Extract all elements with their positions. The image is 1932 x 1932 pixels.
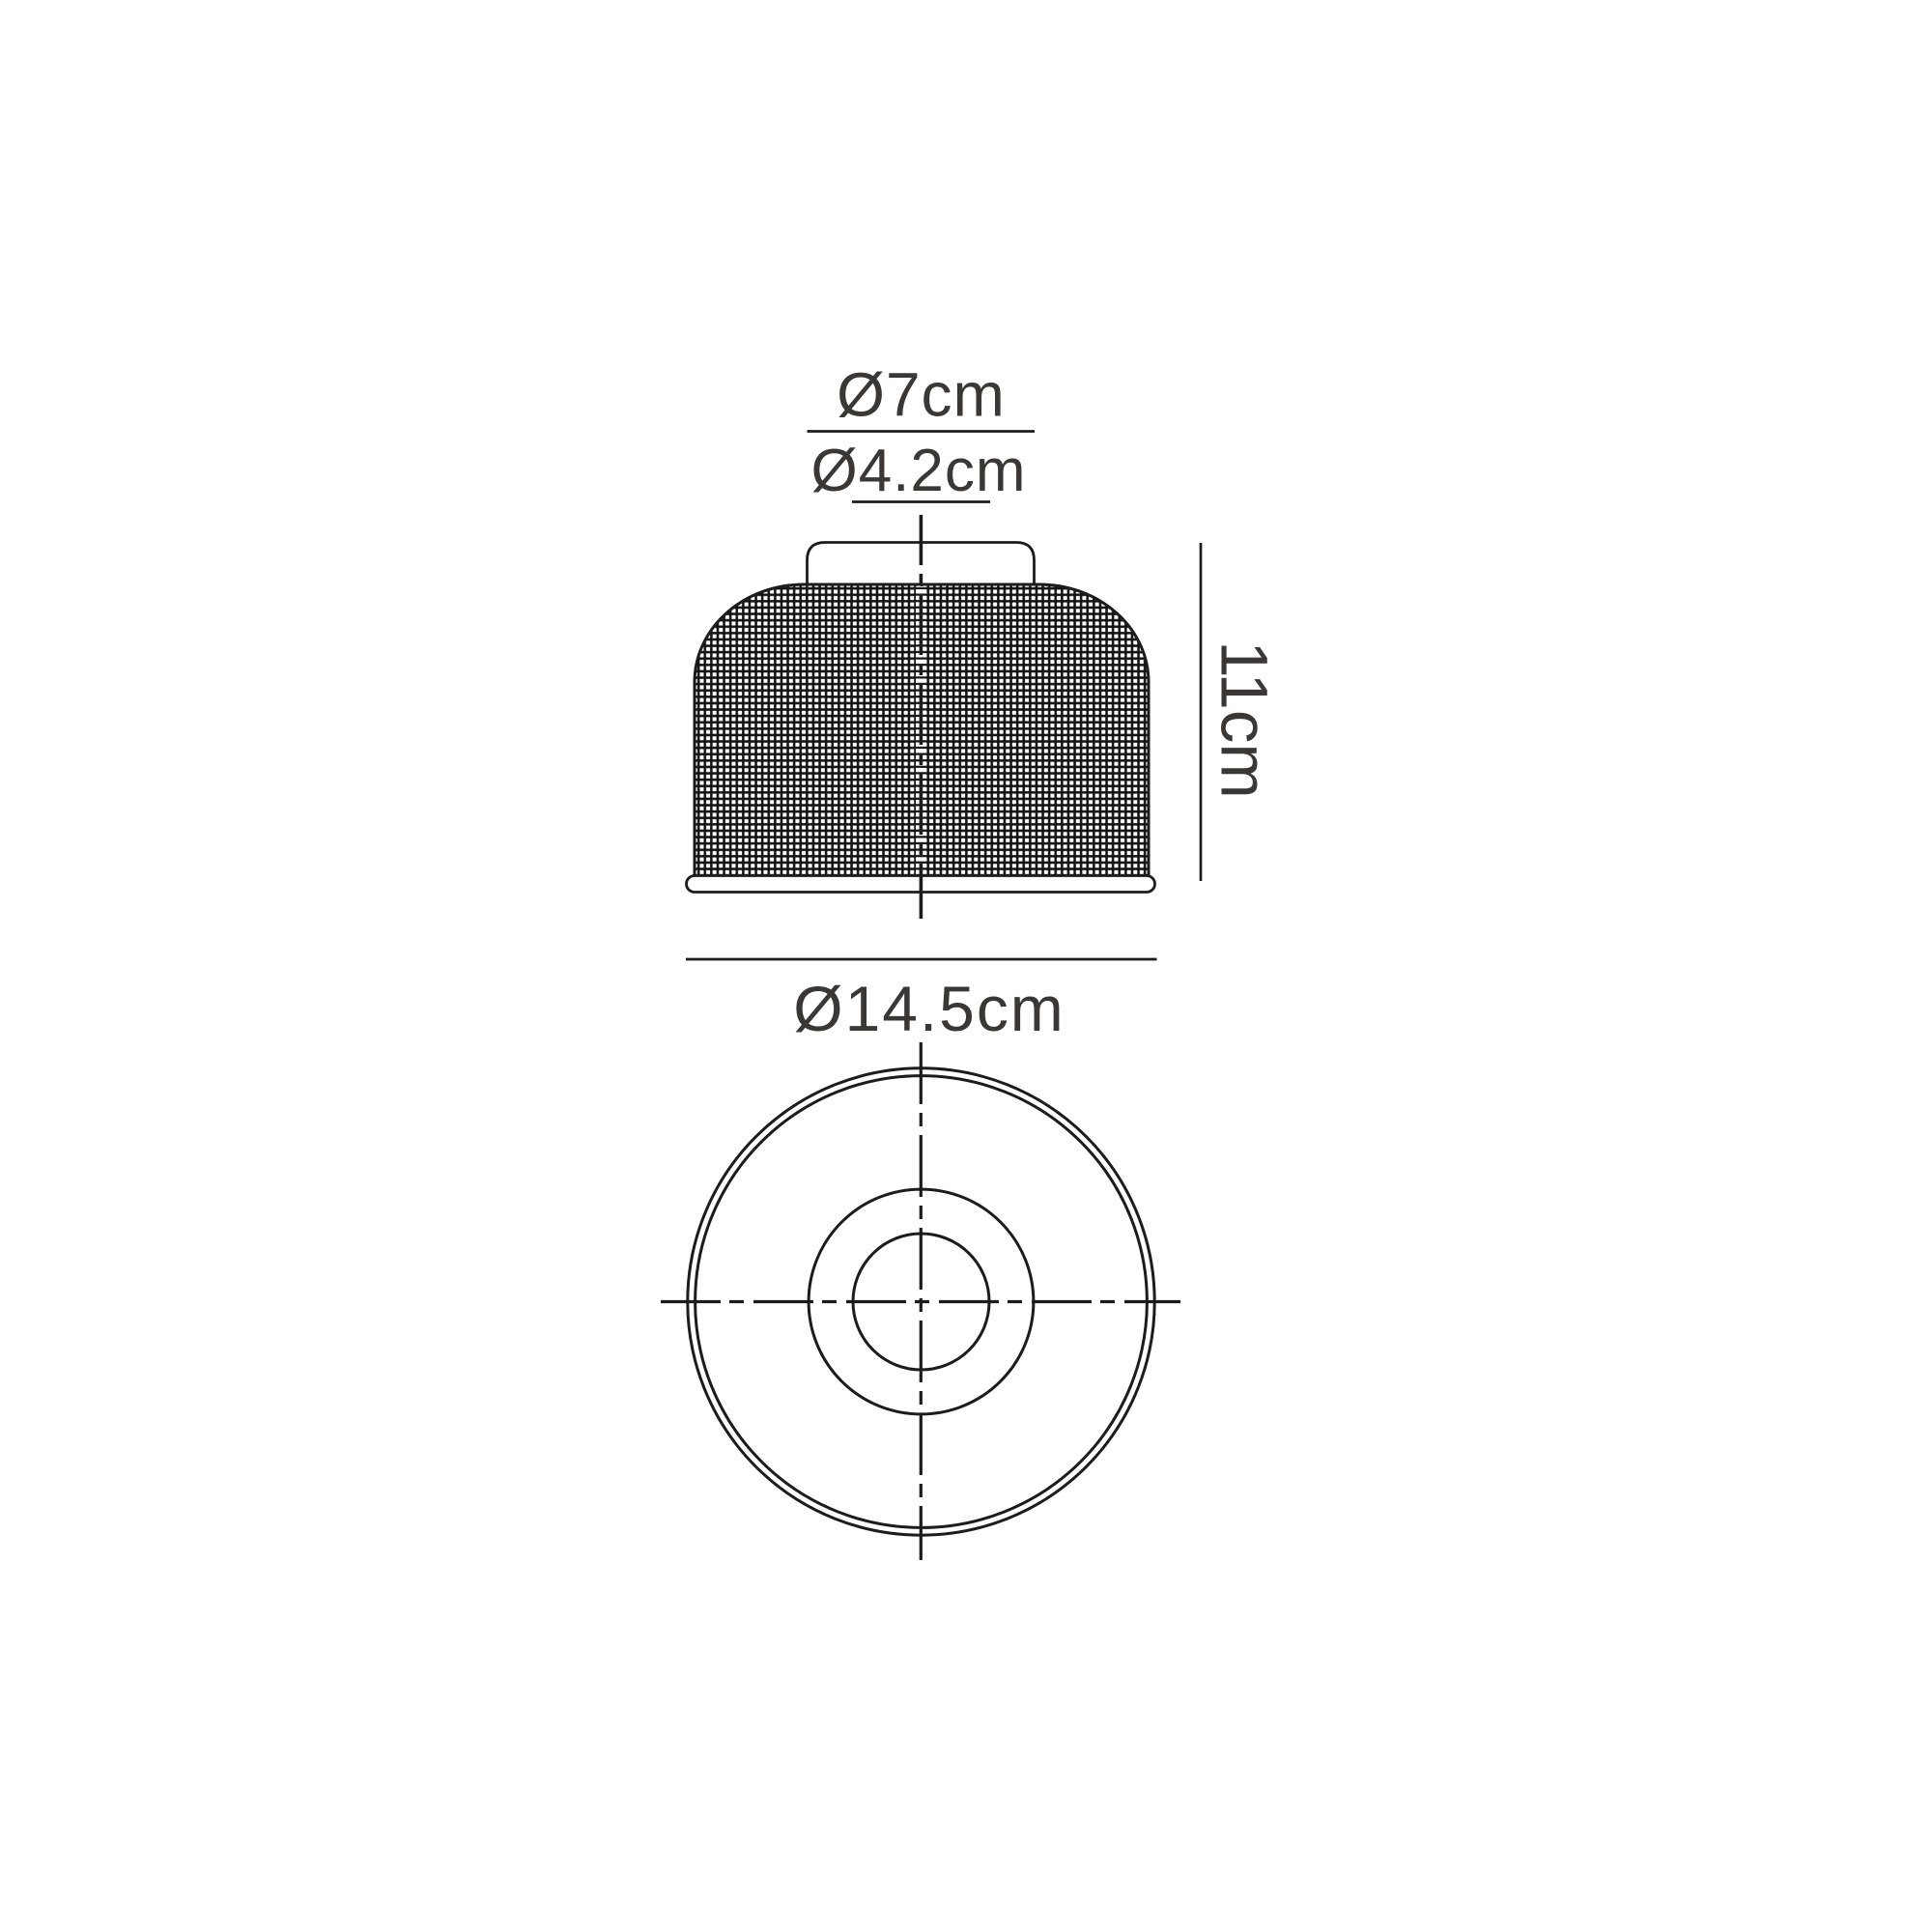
svg-text:Ø4.2cm: Ø4.2cm <box>810 438 1026 504</box>
svg-text:Ø7cm: Ø7cm <box>837 360 1006 430</box>
svg-text:Ø14.5cm: Ø14.5cm <box>793 973 1065 1044</box>
svg-text:11cm: 11cm <box>1207 640 1282 799</box>
